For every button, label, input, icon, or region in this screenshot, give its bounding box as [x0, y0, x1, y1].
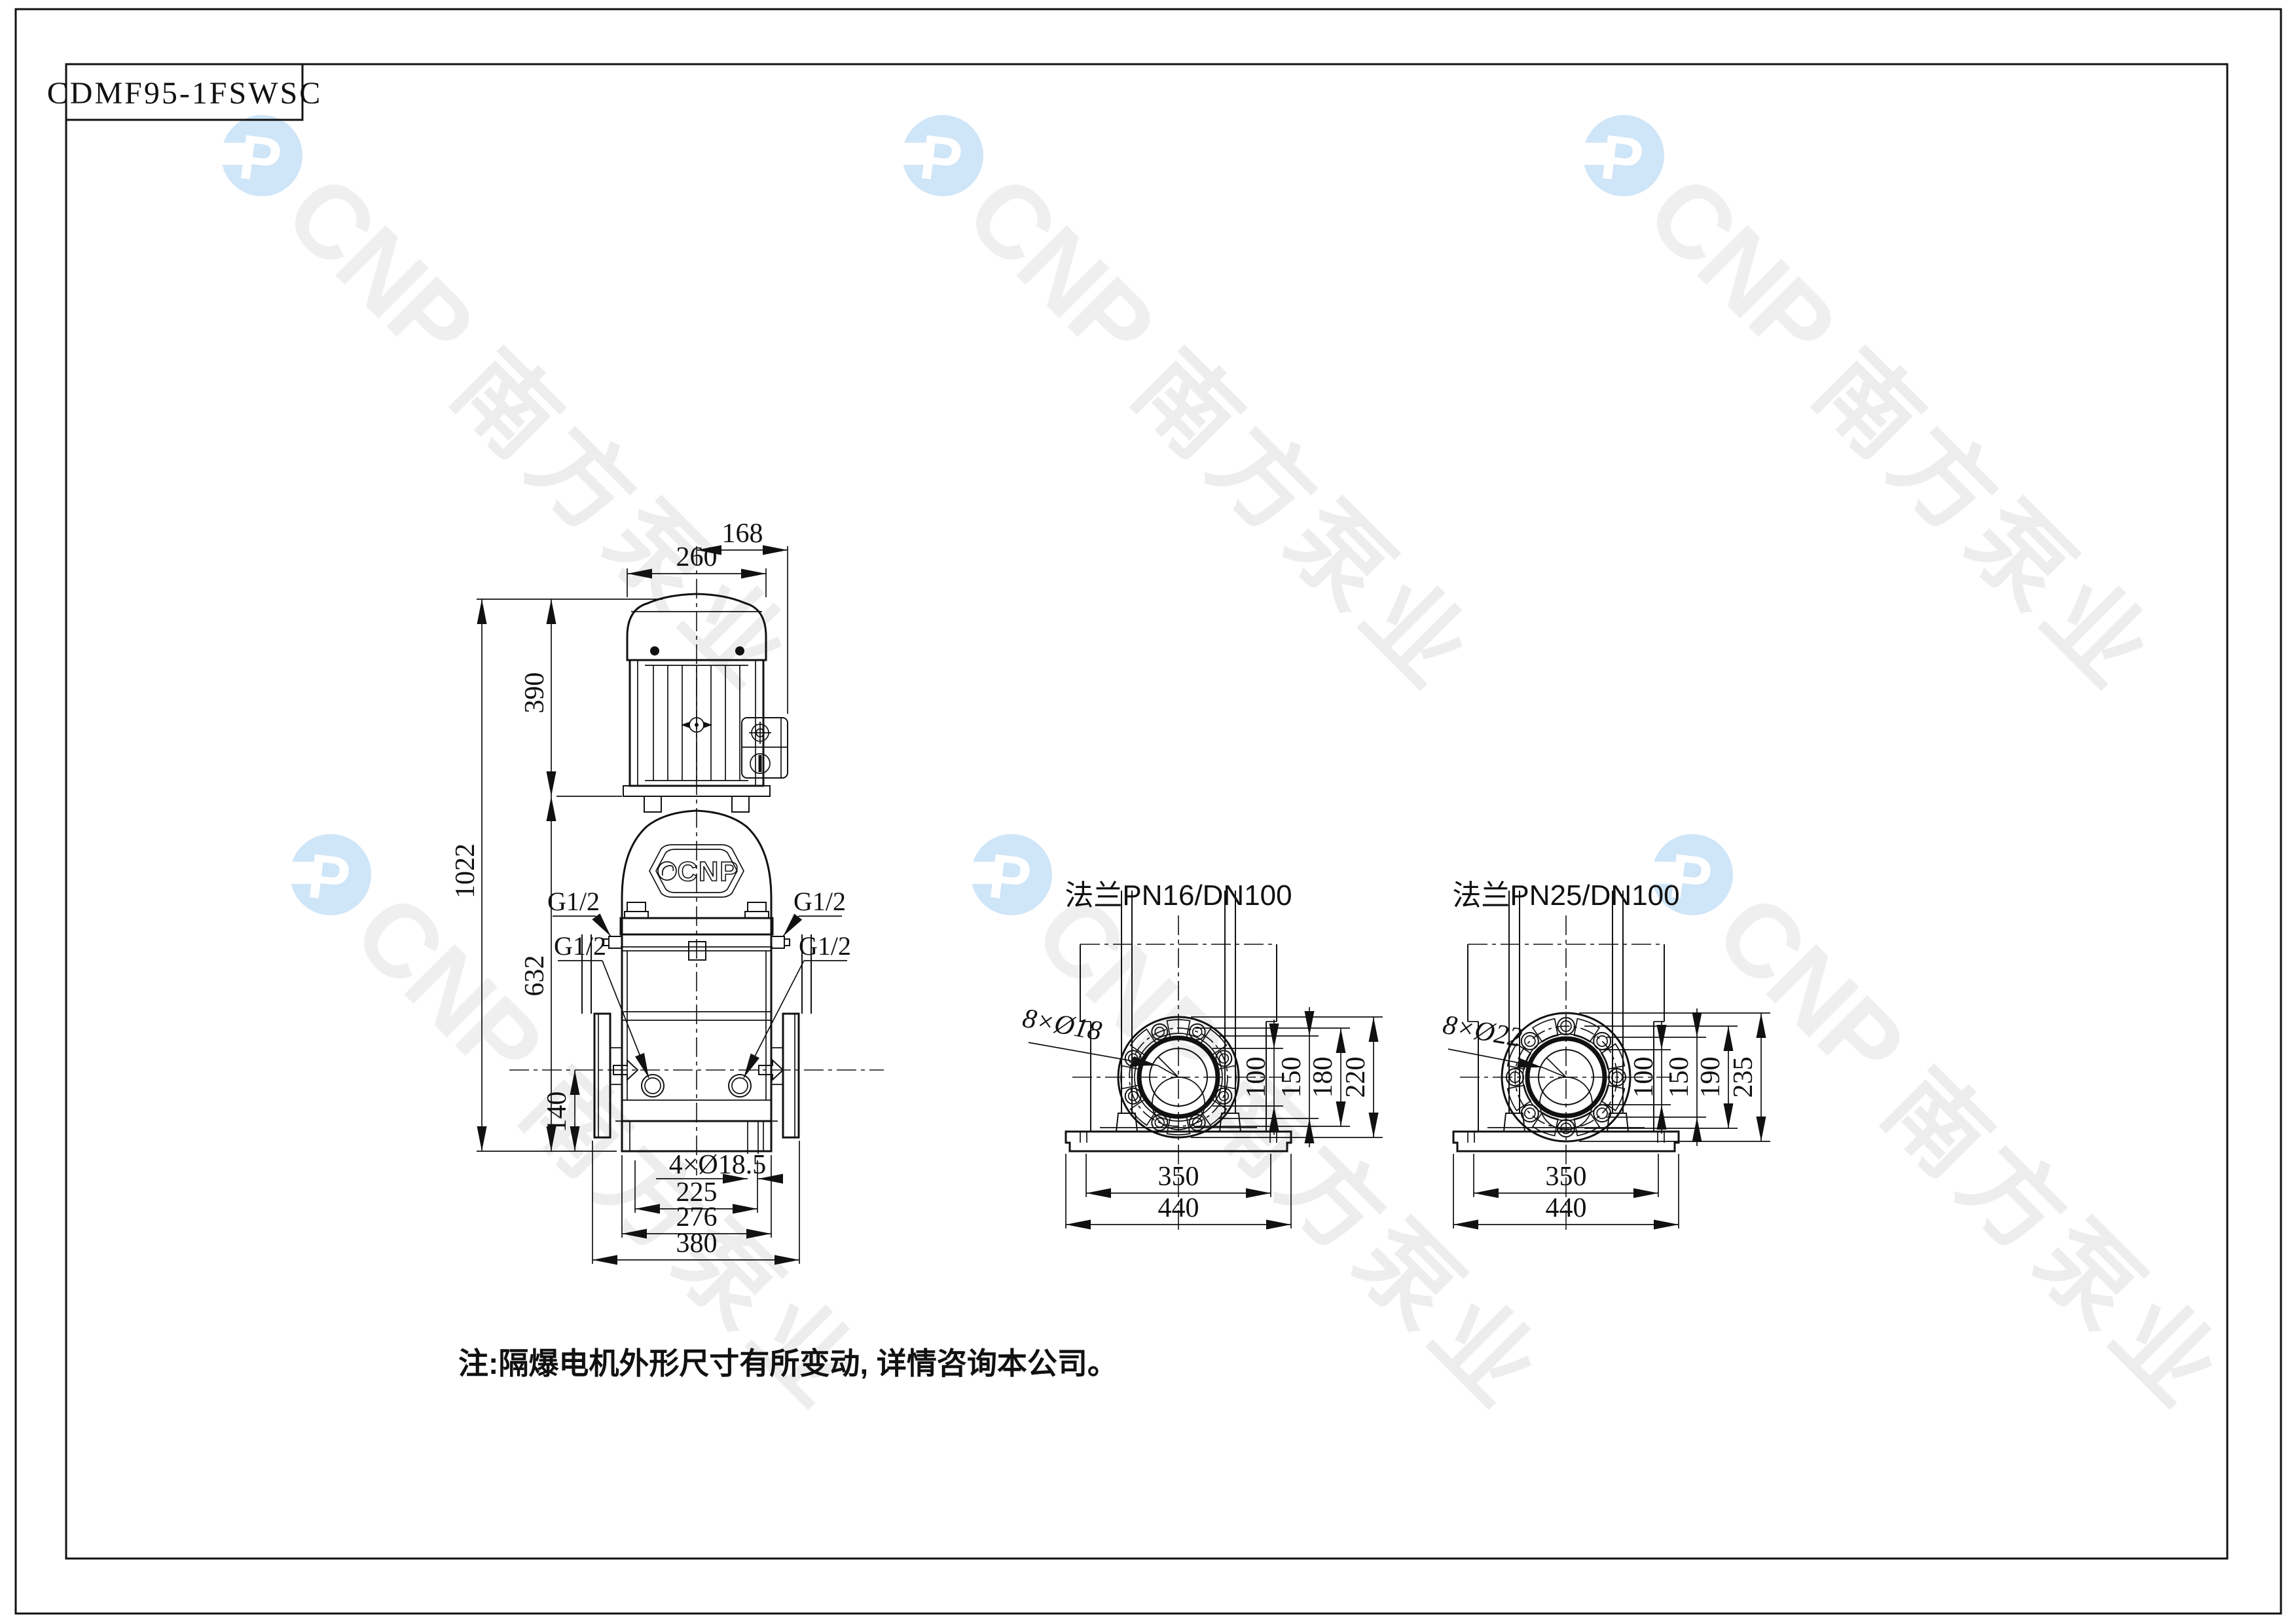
vent-plug-left	[609, 936, 622, 948]
svg-text:G1/2: G1/2	[554, 931, 606, 961]
svg-text:150: 150	[1277, 1057, 1307, 1098]
drawing-sheet: P CNP 南方泵业 P CNP 南方泵业 P CNP 南方泵业	[0, 0, 2296, 1624]
adapter-foot-right	[732, 796, 749, 812]
svg-text:260: 260	[676, 542, 718, 572]
port-label-upper-left: G1/2	[547, 887, 611, 936]
motor-terminal-box	[742, 718, 788, 778]
svg-text:100: 100	[1629, 1057, 1659, 1098]
svg-text:G1/2: G1/2	[547, 887, 600, 916]
svg-text:350: 350	[1158, 1162, 1199, 1192]
svg-text:P: P	[985, 841, 1035, 915]
flange-view-title: 法兰PN16/DN100	[1065, 879, 1292, 912]
svg-text:P: P	[235, 122, 285, 196]
drawing-number: CDMF95-1FSWSC	[47, 76, 322, 111]
vent-plug-right	[771, 936, 784, 948]
svg-text:G1/2: G1/2	[793, 887, 846, 916]
svg-text:632: 632	[520, 955, 550, 997]
svg-text:168: 168	[722, 519, 763, 549]
svg-text:8×Ø22: 8×Ø22	[1440, 1010, 1524, 1053]
svg-text:140: 140	[542, 1092, 572, 1133]
svg-text:100: 100	[1241, 1057, 1271, 1098]
svg-text:390: 390	[520, 673, 550, 714]
watermark: P CNP 南方泵业	[183, 75, 820, 712]
svg-text:220: 220	[1341, 1057, 1371, 1098]
svg-text:CNP: CNP	[1626, 154, 1856, 384]
svg-text:CNP: CNP	[945, 154, 1175, 384]
badge-text: CNP	[678, 856, 740, 887]
svg-text:南方泵业: 南方泵业	[1864, 1050, 2246, 1431]
watermark-layer: P CNP 南方泵业 P CNP 南方泵业 P CNP 南方泵业	[183, 75, 2251, 1431]
pump-barrel	[621, 934, 773, 1121]
dimension-base-holes: 4×Ø18.5	[656, 1150, 783, 1180]
drawing-note: 注:隔爆电机外形尺寸有所变动, 详情咨询本公司。	[458, 1346, 1118, 1380]
adapter-foot-left	[644, 796, 661, 812]
title-block: CDMF95-1FSWSC	[47, 64, 322, 120]
port-label-upper-right: G1/2	[783, 887, 846, 936]
discharge-flange	[771, 1014, 799, 1137]
svg-text:380: 380	[676, 1228, 718, 1259]
svg-text:350: 350	[1546, 1162, 1587, 1192]
svg-text:440: 440	[1158, 1193, 1199, 1223]
dimension-390: 390	[520, 599, 622, 796]
watermark: P CNP 南方泵业	[1614, 794, 2251, 1431]
svg-text:190: 190	[1696, 1057, 1726, 1098]
svg-text:南方泵业: 南方泵业	[1114, 331, 1496, 712]
svg-text:150: 150	[1664, 1057, 1694, 1098]
port-label-lower-right: G1/2	[744, 931, 851, 1078]
svg-text:440: 440	[1546, 1193, 1587, 1223]
svg-text:南方泵业: 南方泵业	[1795, 331, 2177, 712]
watermark: P CNP 南方泵业	[1545, 75, 2182, 712]
svg-text:180: 180	[1308, 1057, 1338, 1098]
svg-text:G1/2: G1/2	[799, 931, 851, 961]
port-label-lower-left: G1/2	[554, 931, 649, 1078]
svg-text:1022: 1022	[450, 843, 481, 898]
watermark: P CNP 南方泵业	[864, 75, 1501, 712]
watermark-cnp-text: CNP	[264, 154, 494, 384]
svg-text:4×Ø18.5: 4×Ø18.5	[669, 1150, 767, 1180]
svg-text:P: P	[1597, 122, 1647, 196]
flange-view-title: 法兰PN25/DN100	[1452, 879, 1679, 912]
svg-text:P: P	[304, 841, 354, 915]
svg-text:P: P	[916, 122, 966, 196]
svg-text:235: 235	[1728, 1057, 1758, 1098]
